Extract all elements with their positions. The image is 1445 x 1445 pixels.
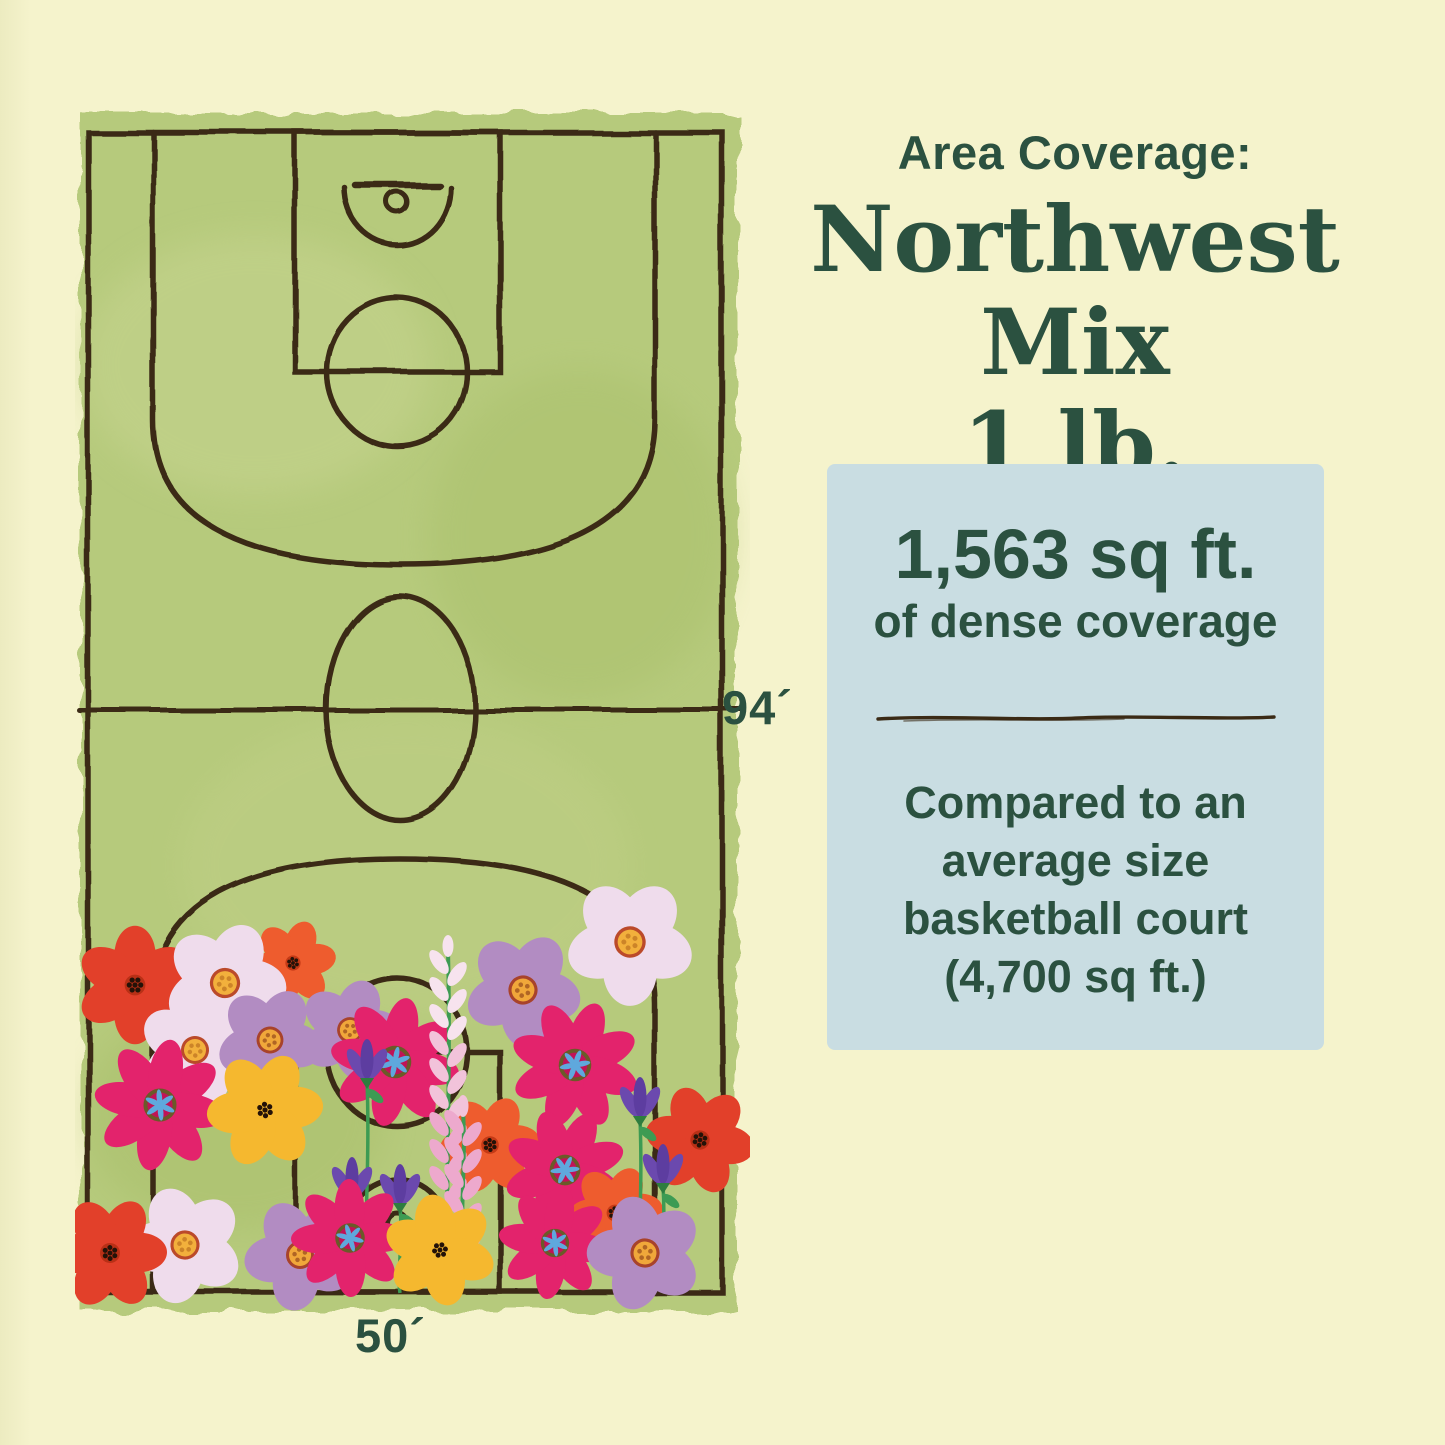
coverage-area-value: 1,563 sq ft.	[827, 516, 1324, 592]
comparison-text: Compared to an average size basketball c…	[827, 774, 1324, 1006]
area-coverage-label: Area Coverage:	[732, 128, 1418, 177]
info-panel: Area Coverage: Northwest Mix 1 lb.	[732, 128, 1418, 498]
basketball-court-illustration	[75, 105, 750, 1320]
comparison-line: Compared to an	[827, 774, 1324, 832]
comparison-line: (4,700 sq ft.)	[827, 948, 1324, 1006]
comparison-line: average size	[827, 832, 1324, 890]
infographic: 94´ 50´ Area Coverage: Northwest Mix 1 l…	[0, 0, 1445, 1445]
comparison-line: basketball court	[827, 890, 1324, 948]
court-length-label: 94´	[722, 684, 793, 731]
court-width-label: 50´	[355, 1312, 426, 1359]
coverage-area-caption: of dense coverage	[827, 594, 1324, 648]
product-title: Northwest Mix	[732, 189, 1418, 395]
coverage-card: 1,563 sq ft. of dense coverage Compared …	[827, 464, 1324, 1050]
hand-drawn-divider	[874, 710, 1278, 726]
